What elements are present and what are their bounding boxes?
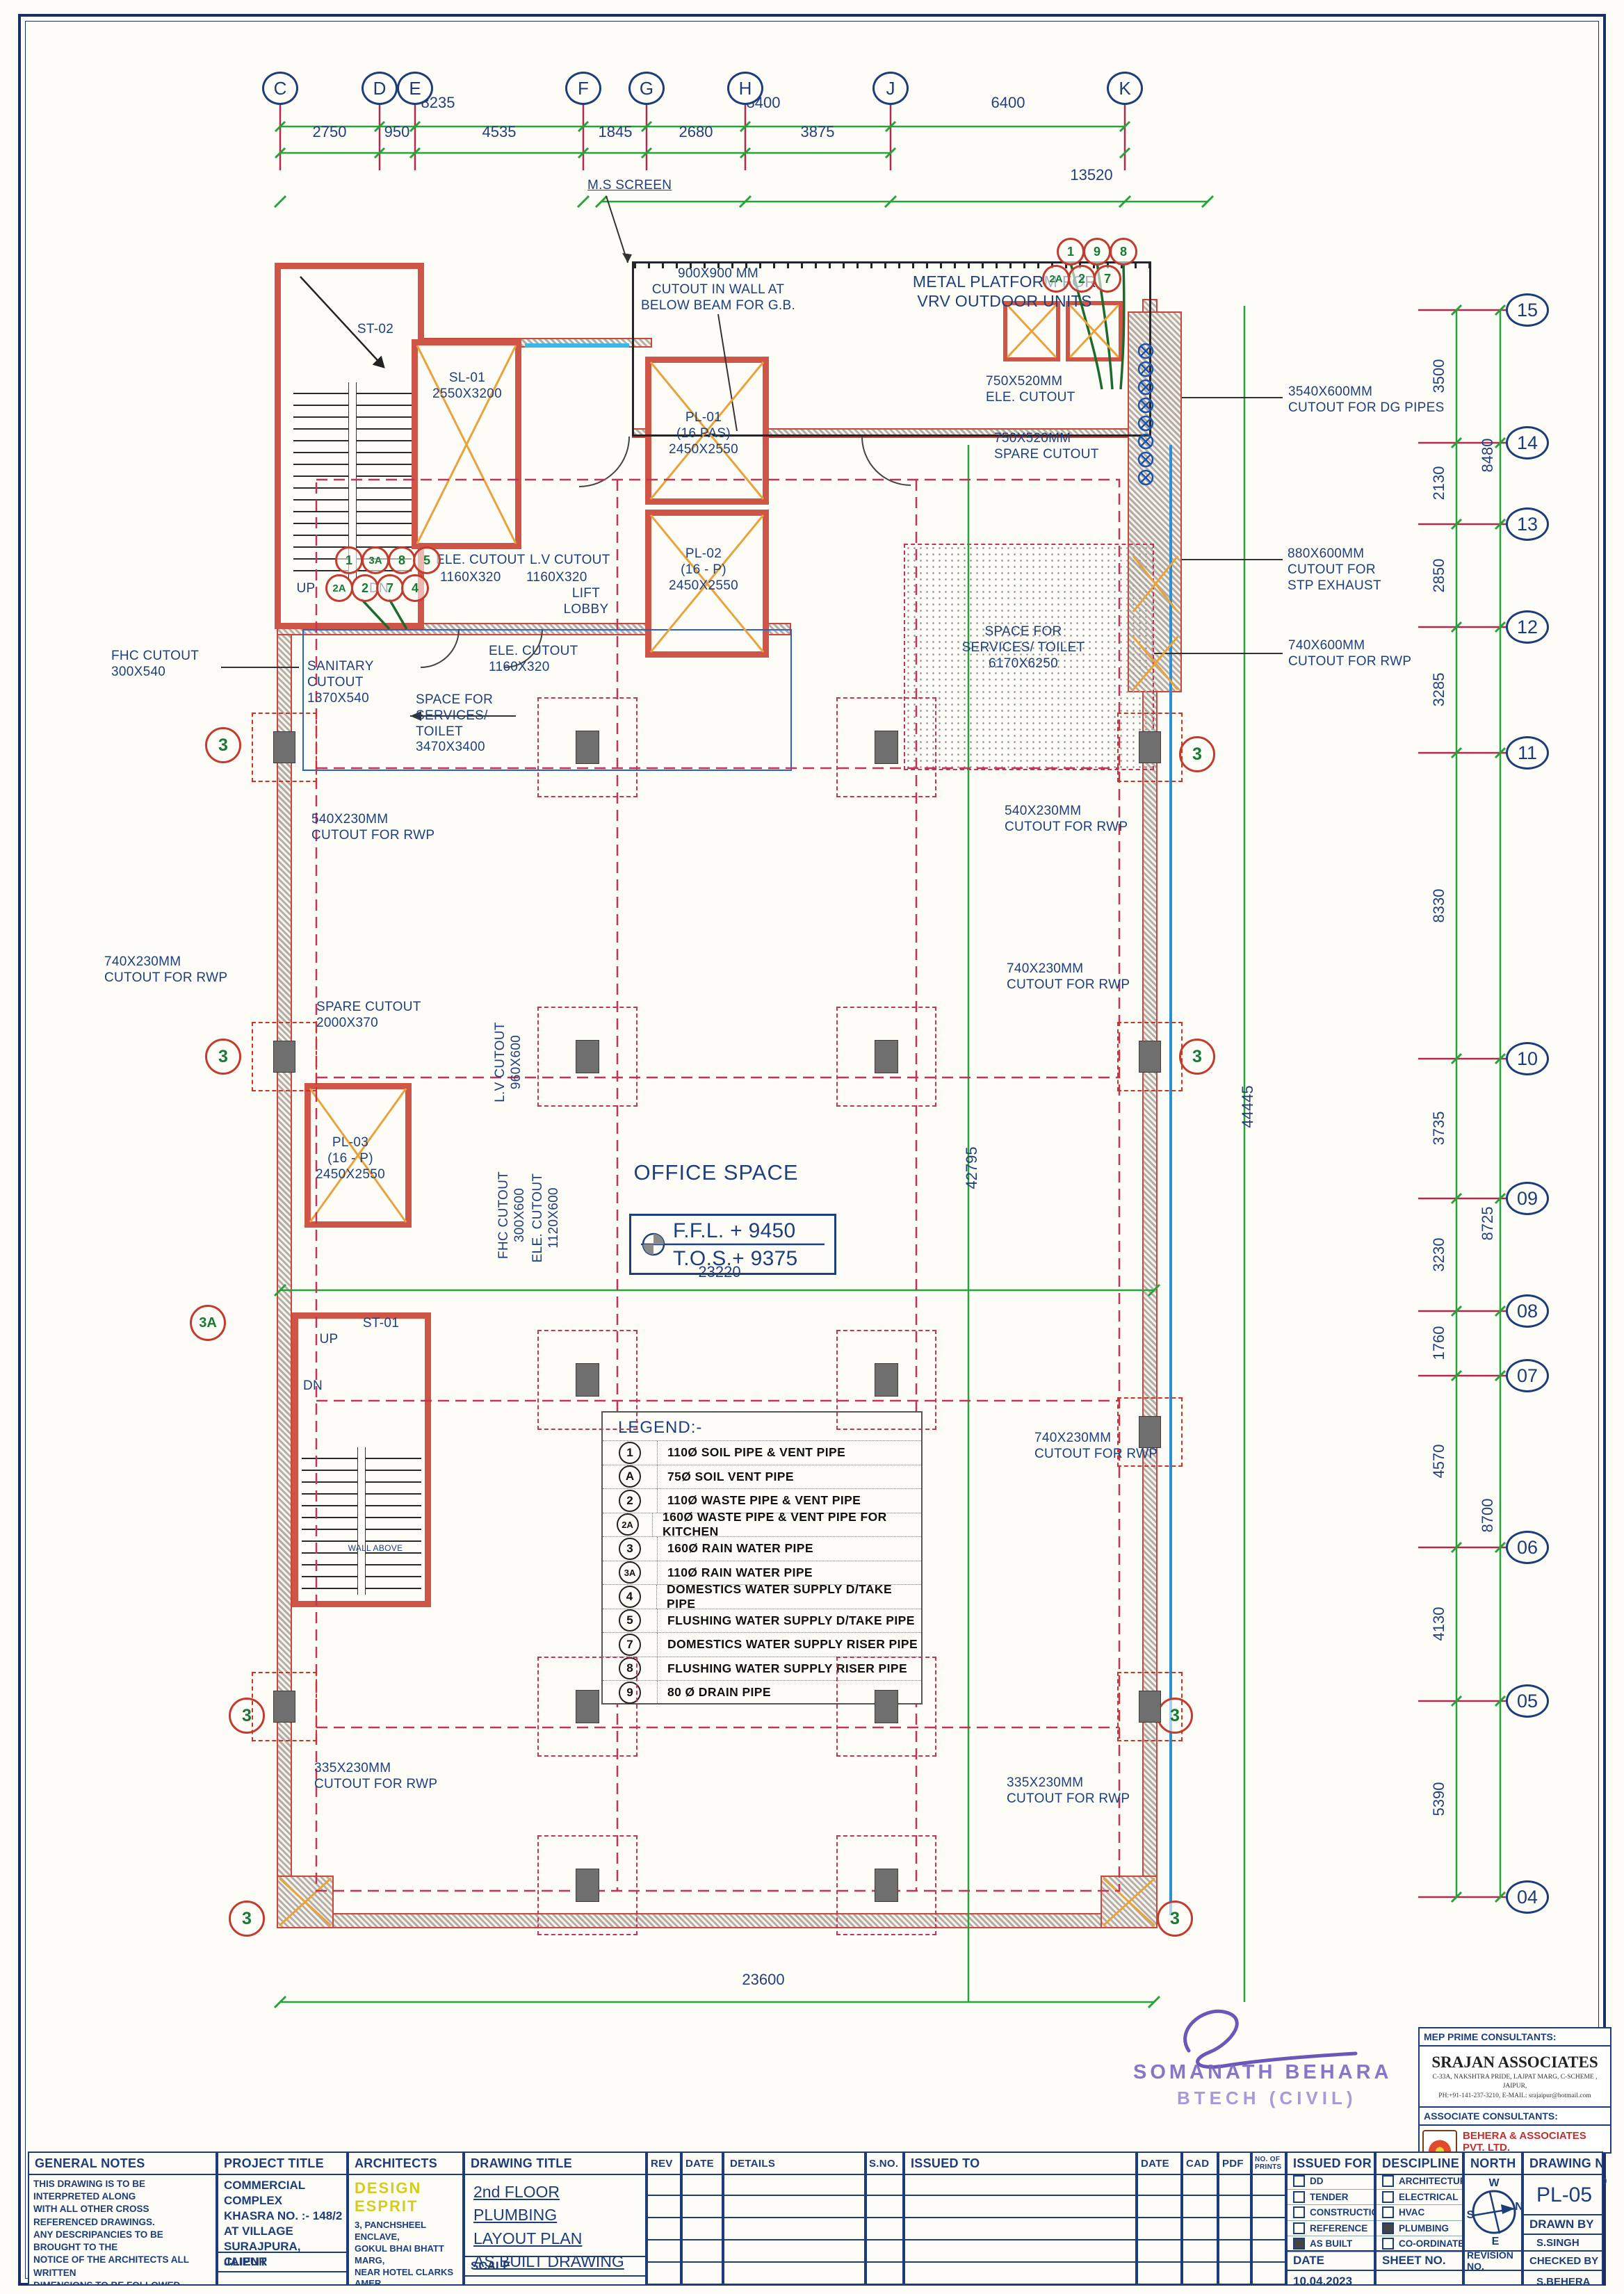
dimension-label: 2750 — [313, 123, 347, 141]
dimension-label: 1845 — [599, 123, 633, 141]
annotation: LIFT LOBBY — [564, 586, 609, 618]
annotation: 540X230MM CUTOUT FOR RWP — [1005, 804, 1128, 836]
annotation: 3540X600MM CUTOUT FOR DG PIPES — [1288, 384, 1445, 416]
dimension-label: 44445 — [1239, 1085, 1257, 1128]
checked-by-value: S.BEHERA — [1531, 2271, 1593, 2284]
edge-column — [273, 731, 295, 763]
pipe-callout-3: 3 — [1179, 736, 1215, 772]
dimension-label: 3230 — [1430, 1238, 1448, 1272]
grid-bubble-K: K — [1107, 72, 1143, 105]
column — [875, 1690, 898, 1723]
checkbox-row-ARCHITECTURE: ARCHITECTURE — [1377, 2174, 1462, 2190]
tb-general-notes: GENERAL NOTES THIS DRAWING IS TO BE INTE… — [28, 2151, 217, 2286]
revision-no-label: REVISION NO. — [1465, 2250, 1521, 2271]
dimension-label: 4570 — [1430, 1445, 1448, 1479]
annotation: L.V CUTOUT — [530, 553, 610, 569]
architect-firm-name: DESIGN ESPRIT — [349, 2174, 462, 2218]
general-notes-text: THIS DRAWING IS TO BE INTERPRETED ALONG … — [29, 2174, 216, 2284]
annotation: ELE. CUTOUT — [436, 553, 526, 569]
tb-date-label: DATE — [1288, 2250, 1374, 2271]
pipe-callout-2: 2 — [351, 574, 379, 602]
checkbox-label: TENDER — [1310, 2192, 1349, 2202]
dimension-label: 3500 — [1430, 359, 1448, 393]
stair-st01-treads — [302, 1447, 421, 1595]
grid-bubble-11: 11 — [1506, 736, 1549, 770]
tb-details: DETAILS — [723, 2151, 866, 2286]
dimension-label: 8480 — [1479, 439, 1497, 473]
grid-bubble-C: C — [262, 72, 298, 105]
grid-bubble-G: G — [628, 72, 665, 105]
tb-issued-for: ISSUED FOR DDTENDERCONSTRUCTIONREFERENCE… — [1286, 2151, 1375, 2286]
annotation: 740X230MM CUTOUT FOR RWP — [1007, 961, 1130, 993]
corner-block-se — [1101, 1876, 1158, 1928]
annotation: SANITARY CUTOUT 1370X540 — [307, 659, 374, 706]
client-label: CLIENT — [218, 2252, 346, 2272]
annotation: OFFICE SPACE — [633, 1160, 798, 1185]
unchecked-checkbox-icon — [1293, 2206, 1305, 2218]
annotation: ST-02 — [357, 322, 393, 338]
checkbox-row-ELECTRICAL: ELECTRICAL — [1377, 2190, 1462, 2206]
checked-by-label: CHECKED BY — [1524, 2250, 1602, 2271]
annotation: 1160X320 — [440, 570, 501, 586]
drawing-title-label: DRAWING TITLE — [465, 2153, 645, 2175]
pipe-callout-3A: 3A — [190, 1305, 226, 1341]
architects-label: ARCHITECTS — [349, 2153, 462, 2175]
pipe-callout-1: 1 — [1057, 238, 1085, 266]
legend-text: 160Ø WASTE PIPE & VENT PIPE FOR KITCHEN — [653, 1510, 921, 1539]
pipe-callout-3: 3 — [1157, 1901, 1193, 1937]
annotation: UP — [320, 1332, 339, 1348]
edge-column — [273, 1041, 295, 1073]
drawing-no-value: PL-05 — [1524, 2174, 1602, 2207]
annotation: ELE. CUTOUT 1160X320 — [489, 644, 578, 676]
scale-label: SCALE — [465, 2256, 645, 2277]
legend-row: 3160Ø RAIN WATER PIPE — [603, 1536, 921, 1561]
grid-bubble-D: D — [362, 72, 398, 105]
annotation: PL-03 (16 - P) 2450X2550 — [316, 1135, 385, 1182]
pipe-callout-8: 8 — [388, 546, 416, 574]
pipe-callout-9: 9 — [1083, 238, 1111, 266]
annotation: 750X520MM SPARE CUTOUT — [994, 431, 1099, 463]
dimension-label: 5390 — [1430, 1782, 1448, 1816]
grid-bubble-07: 07 — [1506, 1359, 1549, 1392]
north-label: NORTH — [1465, 2153, 1521, 2175]
checkbox-row-PLUMBING: PLUMBING — [1377, 2221, 1462, 2237]
tb-drawing-no: DRAWING NO. PL-05 DRAWN BY S.SINGH CHECK… — [1522, 2151, 1603, 2286]
compass-n: N — [1515, 2201, 1521, 2213]
pdf-col-label: PDF — [1219, 2153, 1250, 2175]
date-col-label: DATE — [683, 2153, 722, 2175]
mep-consultants-label: MEP PRIME CONSULTANTS: — [1420, 2028, 1610, 2047]
checkbox-row-TENDER: TENDER — [1288, 2190, 1374, 2206]
annotation: SL-01 2550X3200 — [432, 371, 502, 402]
legend-text: 110Ø WASTE PIPE & VENT PIPE — [658, 1493, 861, 1508]
dimension-label: 8725 — [1479, 1207, 1497, 1241]
annotation: PL-02 (16 - P) 2450X2550 — [669, 546, 738, 594]
legend-symbol-3A: 3A — [619, 1561, 641, 1584]
grid-bubble-04: 04 — [1506, 1880, 1549, 1914]
annotation: 750X520MM ELE. CUTOUT — [986, 374, 1075, 406]
column — [576, 1690, 599, 1723]
signature-name: SOMANATH BEHARA — [1133, 2061, 1392, 2084]
legend-text: FLUSHING WATER SUPPLY D/TAKE PIPE — [658, 1613, 915, 1628]
annotation: 900X900 MM CUTOUT IN WALL AT BELOW BEAM … — [641, 266, 795, 314]
annotation: 335X230MM CUTOUT FOR RWP — [314, 1761, 437, 1793]
sheet-no-label: SHEET NO. — [1377, 2250, 1462, 2271]
tb-project-title: PROJECT TITLE COMMERCIAL COMPLEX KHASRA … — [217, 2151, 348, 2286]
checkbox-row-REFERENCE: REFERENCE — [1288, 2221, 1374, 2237]
legend-symbol-7: 7 — [619, 1634, 641, 1656]
grid-bubble-05: 05 — [1506, 1684, 1549, 1718]
grid-bubble-13: 13 — [1506, 507, 1549, 541]
legend-symbol-2: 2 — [619, 1490, 641, 1512]
tb-drawing-title: DRAWING TITLE 2nd FLOOR PLUMBING LAYOUT … — [464, 2151, 647, 2286]
column — [576, 1363, 599, 1397]
annotation: 1160X320 — [526, 570, 587, 586]
drawing-sheet: F.F.L. + 9450 T.O.S.+ 9375 — [0, 0, 1624, 2294]
checkbox-label: DD — [1310, 2176, 1324, 2186]
edge-column — [1139, 731, 1161, 763]
corner-block-sw — [277, 1876, 334, 1928]
annotation: M.S SCREEN — [587, 178, 672, 194]
issued-to-col-label: ISSUED TO — [905, 2153, 1135, 2175]
dimension-label: 8330 — [1430, 889, 1448, 923]
checkbox-label: AS BUILT — [1310, 2238, 1352, 2249]
grid-bubble-H: H — [727, 72, 763, 105]
pipe-callout-2A: 2A — [325, 574, 353, 602]
issued-for-label: ISSUED FOR — [1288, 2153, 1374, 2175]
column — [576, 1040, 599, 1073]
general-notes-label: GENERAL NOTES — [29, 2153, 216, 2175]
ffl-value: F.F.L. + 9450 — [673, 1219, 796, 1244]
annotation: 540X230MM CUTOUT FOR RWP — [311, 812, 435, 844]
column — [875, 1363, 898, 1397]
column — [576, 1869, 599, 1902]
associate-consultants-label: ASSOCIATE CONSULTANTS: — [1420, 2106, 1610, 2126]
grid-bubble-E: E — [397, 72, 433, 105]
legend-row: 3A110Ø RAIN WATER PIPE — [603, 1561, 921, 1585]
dimension-label: 3875 — [801, 123, 835, 141]
unchecked-checkbox-icon — [1293, 2191, 1305, 2203]
grid-bubble-08: 08 — [1506, 1294, 1549, 1328]
tb-cad: CAD — [1182, 2151, 1218, 2286]
lobby-pipe-line — [525, 343, 629, 348]
grid-bubble-10: 10 — [1506, 1042, 1549, 1075]
pipe-callout-8: 8 — [1110, 238, 1137, 266]
grid-bubble-06: 06 — [1506, 1531, 1549, 1564]
column — [875, 731, 898, 764]
edge-column — [1139, 1041, 1161, 1073]
checkbox-row-CONSTRUCTION: CONSTRUCTION — [1288, 2205, 1374, 2221]
legend-symbol-A: A — [619, 1465, 641, 1488]
annotation: SPACE FOR SERVICES/ TOILET 6170X6250 — [962, 624, 1085, 672]
tb-prints: NO. OF PRINTS — [1251, 2151, 1286, 2286]
pipe-callout-3: 3 — [205, 1039, 241, 1075]
annotation: DN — [303, 1378, 323, 1394]
pipe-callout-2: 2 — [1068, 265, 1096, 293]
dimension-label: 8700 — [1479, 1499, 1497, 1533]
consultants-panel: MEP PRIME CONSULTANTS: SRAJAN ASSOCIATES… — [1418, 2027, 1611, 2154]
annotation: 880X600MM CUTOUT FOR STP EXHAUST — [1288, 546, 1381, 594]
grid-bubble-14: 14 — [1506, 426, 1549, 459]
tb-pdf: PDF — [1218, 2151, 1251, 2286]
annotation: FHC CUTOUT 300X540 — [111, 649, 199, 681]
dimension-label: 2680 — [679, 123, 713, 141]
legend-row: 2110Ø WASTE PIPE & VENT PIPE — [603, 1488, 921, 1513]
architect-address: 3, PANCHSHEEL ENCLAVE, GOKUL BHAI BHATT … — [349, 2218, 462, 2284]
descipline-label: DESCIPLINE — [1377, 2153, 1462, 2175]
annotation: ST-01 — [363, 1316, 399, 1332]
dimension-label: 42795 — [963, 1146, 981, 1189]
dimension-label: 23220 — [698, 1263, 740, 1281]
legend-row: 7DOMESTICS WATER SUPPLY RISER PIPE — [603, 1632, 921, 1657]
legend-text: 160Ø RAIN WATER PIPE — [658, 1541, 813, 1556]
annotation: SPACE FOR SERVICES/ TOILET 3470X3400 — [416, 692, 493, 756]
annotation: 740X230MM CUTOUT FOR RWP — [104, 954, 227, 986]
pipe-callout-7: 7 — [1094, 265, 1121, 293]
compass-s: S — [1467, 2209, 1475, 2222]
grid-bubble-J: J — [872, 72, 909, 105]
grid-bubble-09: 09 — [1506, 1182, 1549, 1215]
dimension-label: 1760 — [1430, 1326, 1448, 1360]
checkbox-label: ARCHITECTURE — [1399, 2176, 1462, 2186]
date2-col-label: DATE — [1138, 2153, 1180, 2175]
compass-w: W — [1488, 2177, 1499, 2190]
cad-col-label: CAD — [1183, 2153, 1217, 2175]
pipe-callout-3: 3 — [1179, 1039, 1215, 1075]
annotation: 335X230MM CUTOUT FOR RWP — [1007, 1775, 1130, 1807]
checkbox-row-HVAC: HVAC — [1377, 2205, 1462, 2221]
annotation: UP — [297, 581, 316, 597]
dimension-label: 950 — [384, 123, 410, 141]
details-col-label: DETAILS — [724, 2153, 864, 2175]
pipe-callout-1: 1 — [335, 546, 363, 574]
unchecked-checkbox-icon — [1382, 2238, 1394, 2250]
mep-consultant-name: SRAJAN ASSOCIATES — [1420, 2047, 1610, 2072]
wall-south — [277, 1913, 1158, 1928]
grid-bubble-F: F — [565, 72, 601, 105]
annotation: SPARE CUTOUT 2000X370 — [316, 1000, 421, 1032]
project-title-label: PROJECT TITLE — [218, 2153, 346, 2175]
dimension-label: 4130 — [1430, 1607, 1448, 1641]
legend-symbol-3: 3 — [619, 1538, 641, 1560]
annotation: ELE. CUTOUT 1120X600 — [530, 1173, 562, 1263]
tb-date: DATE — [681, 2151, 723, 2286]
legend-row: 5FLUSHING WATER SUPPLY D/TAKE PIPE — [603, 1609, 921, 1633]
legend-text: 110Ø SOIL PIPE & VENT PIPE — [658, 1445, 845, 1460]
legend-text: 110Ø RAIN WATER PIPE — [658, 1565, 813, 1580]
unchecked-checkbox-icon — [1382, 2206, 1394, 2218]
tb-issued-to: ISSUED TO — [904, 2151, 1137, 2286]
legend-text: DOMESTICS WATER SUPPLY D/TAKE PIPE — [657, 1582, 921, 1611]
dimension-label: 3285 — [1430, 673, 1448, 707]
checkbox-label: HVAC — [1399, 2207, 1424, 2218]
unchecked-checkbox-icon — [1293, 2222, 1305, 2234]
rev-col-label: REV — [648, 2153, 680, 2175]
grid-bubble-15: 15 — [1506, 293, 1549, 327]
dimension-label: 3735 — [1430, 1112, 1448, 1146]
tb-date-value: 10.04.2023 — [1288, 2270, 1355, 2284]
dimension-label: 2130 — [1430, 466, 1448, 501]
pipe-callout-3: 3 — [229, 1901, 265, 1937]
annotation: WALL ABOVE — [348, 1543, 403, 1553]
pipe-callout-3A: 3A — [362, 546, 389, 574]
checkbox-row-DD: DD — [1288, 2174, 1374, 2190]
annotation: PL-01 (16 PAS) 2450X2550 — [669, 410, 738, 457]
legend-row: 2A160Ø WASTE PIPE & VENT PIPE FOR KITCHE… — [603, 1513, 921, 1537]
legend-symbol-2A: 2A — [617, 1513, 639, 1536]
column — [875, 1040, 898, 1073]
stair-st01-stringer — [357, 1447, 366, 1595]
checked-checkbox-icon — [1382, 2222, 1394, 2234]
legend-row: A75Ø SOIL VENT PIPE — [603, 1465, 921, 1489]
unchecked-checkbox-icon — [1382, 2191, 1394, 2203]
tb-architects: ARCHITECTS DESIGN ESPRIT 3, PANCHSHEEL E… — [348, 2151, 464, 2286]
tb-descipline: DESCIPLINE ARCHITECTUREELECTRICALHVACPLU… — [1375, 2151, 1463, 2286]
signature-title: BTECH (CIVIL) — [1177, 2088, 1357, 2109]
legend-text: 80 Ø DRAIN PIPE — [658, 1685, 771, 1700]
pipe-callout-4: 4 — [401, 574, 429, 602]
annotation: 740X600MM CUTOUT FOR RWP — [1288, 638, 1411, 670]
legend-symbol-5: 5 — [619, 1609, 641, 1632]
edge-column — [1139, 1416, 1161, 1448]
mep-consultant-address: C-33A, NAKSHTRA PRIDE, LAJPAT MARG, C-SC… — [1420, 2072, 1610, 2106]
legend-text: DOMESTICS WATER SUPPLY RISER PIPE — [658, 1637, 918, 1652]
legend-row: 1110Ø SOIL PIPE & VENT PIPE — [603, 1440, 921, 1465]
pipe-callout-7: 7 — [376, 574, 404, 602]
pipe-callout-3: 3 — [205, 727, 241, 763]
drawing-no-label: DRAWING NO. — [1524, 2153, 1602, 2175]
checkbox-label: ELECTRICAL — [1399, 2192, 1459, 2202]
checkbox-label: CO-ORDINATED — [1399, 2238, 1462, 2249]
legend-row: 4DOMESTICS WATER SUPPLY D/TAKE PIPE — [603, 1584, 921, 1609]
prints-col-label: NO. OF PRINTS — [1253, 2153, 1285, 2175]
legend-symbol-4: 4 — [619, 1586, 641, 1608]
annotation: L.V CUTOUT 960X600 — [493, 1022, 525, 1103]
column — [576, 731, 599, 764]
sno-col-label: S.NO. — [867, 2153, 902, 2175]
edge-column — [1139, 1691, 1161, 1723]
unchecked-checkbox-icon — [1293, 2175, 1305, 2187]
tb-date2: DATE — [1137, 2151, 1182, 2286]
pipe-callout-5: 5 — [413, 546, 441, 574]
legend-symbol-1: 1 — [619, 1442, 641, 1464]
checked-checkbox-icon — [1293, 2238, 1305, 2250]
dimension-label: 6400 — [991, 94, 1025, 112]
drawn-by-value: S.SINGH — [1531, 2232, 1582, 2250]
grid-bubble-12: 12 — [1506, 610, 1549, 644]
associate-consultant-name: BEHERA & ASSOCIATES PVT. LTD. — [1463, 2130, 1607, 2154]
column — [875, 1869, 898, 1902]
dimension-label: 4535 — [482, 123, 517, 141]
tb-sno: S.NO. — [866, 2151, 904, 2286]
tb-rev: REV — [647, 2151, 681, 2286]
checkbox-label: PLUMBING — [1399, 2223, 1449, 2234]
legend-text: 75Ø SOIL VENT PIPE — [658, 1470, 794, 1484]
edge-column — [273, 1691, 295, 1723]
dimension-label: 2850 — [1430, 559, 1448, 593]
unchecked-checkbox-icon — [1382, 2175, 1394, 2187]
compass-e: E — [1492, 2236, 1500, 2248]
dimension-label: 13520 — [1070, 166, 1112, 184]
tb-north: NORTH W N S E REVISION NO. — [1463, 2151, 1522, 2286]
dimension-label: 23600 — [742, 1971, 784, 1989]
checkbox-label: CONSTRUCTION — [1310, 2207, 1374, 2218]
annotation: FHC CUTOUT 300X600 — [496, 1171, 528, 1259]
checkbox-label: REFERENCE — [1310, 2223, 1367, 2234]
pipe-callout-2A: 2A — [1042, 265, 1070, 293]
